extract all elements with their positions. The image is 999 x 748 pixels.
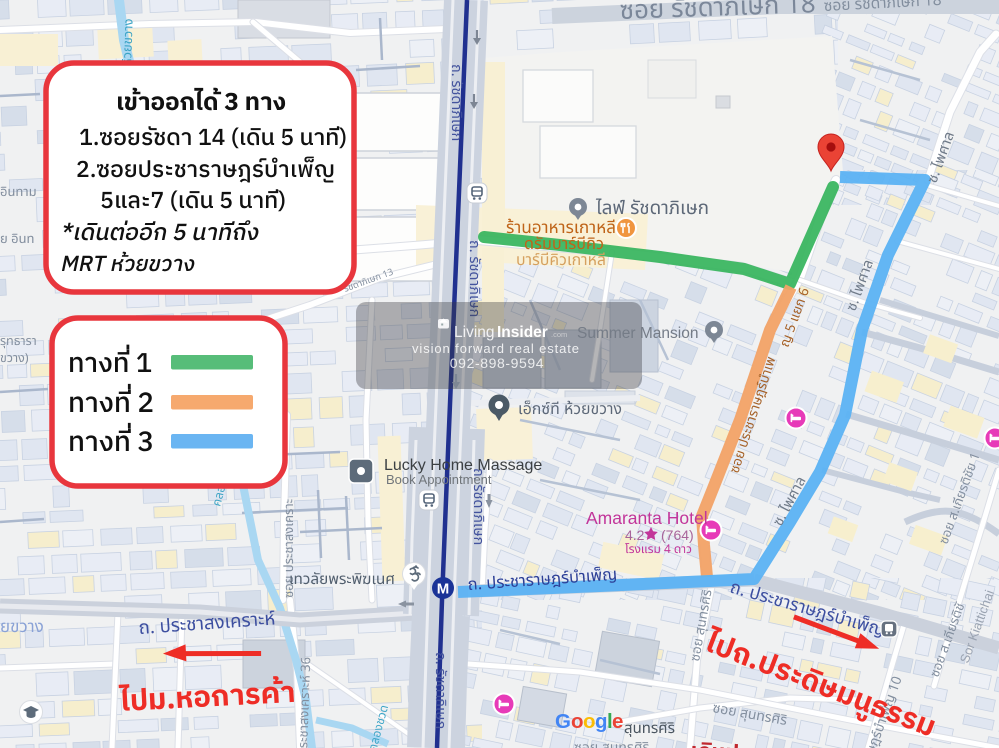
svg-text:o: o — [583, 710, 596, 733]
svg-text:g: g — [595, 710, 608, 733]
svg-text:(764): (764) — [661, 527, 694, 543]
svg-text:vision forward real estate: vision forward real estate — [412, 341, 580, 356]
svg-text:Book Appointment: Book Appointment — [386, 472, 492, 487]
svg-text:.com: .com — [551, 330, 567, 339]
svg-text:092-898-9594: 092-898-9594 — [450, 355, 544, 371]
svg-text:e: e — [612, 710, 623, 733]
svg-text:Living: Living — [454, 324, 495, 341]
svg-text:G: G — [555, 710, 571, 733]
svg-text:Summer Mansion: Summer Mansion — [577, 325, 698, 342]
svg-text:4.2: 4.2 — [625, 527, 645, 543]
svg-text:M: M — [437, 581, 450, 598]
svg-text:Amaranta Hotel: Amaranta Hotel — [586, 508, 708, 528]
svg-text:Insider: Insider — [497, 324, 548, 341]
svg-text:o: o — [571, 710, 584, 733]
